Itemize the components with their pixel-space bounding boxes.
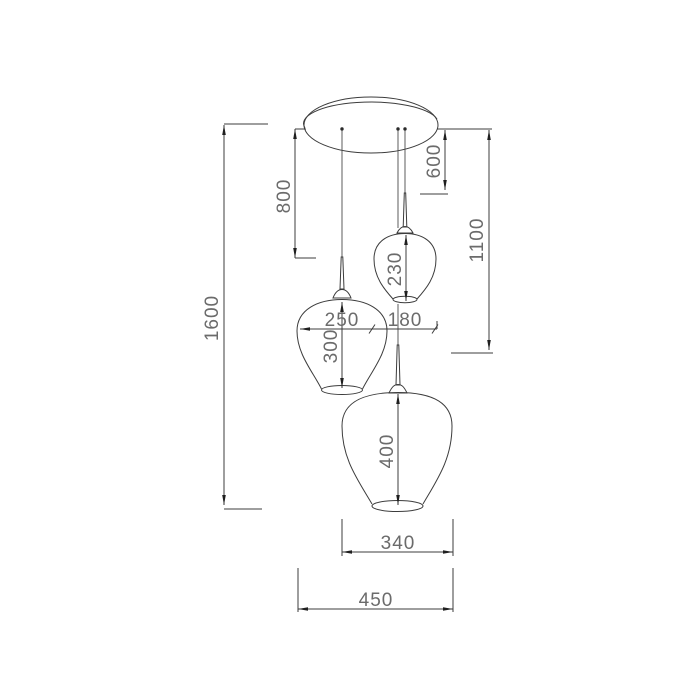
cap-medium [333, 290, 351, 299]
shade-small-rim [393, 296, 417, 302]
stem-small [403, 193, 407, 227]
dim-drop-medium-label: 1100 [467, 218, 488, 263]
dim-medium-shade-height-label: 300 [321, 329, 342, 364]
dim-total-height: 1600 [202, 124, 268, 509]
canopy-top-surface [304, 102, 437, 128]
cap-large [389, 385, 407, 394]
stem-large [396, 345, 400, 385]
dim-large-shade-width-label: 340 [381, 533, 416, 554]
dim-cord-right-label: 600 [424, 144, 445, 179]
dim-large-shade-width: 340 [342, 519, 453, 556]
dimensions: 1600 800 600 1100 [202, 124, 493, 612]
stem-medium [340, 257, 344, 289]
canopy-outline [304, 97, 438, 153]
dim-cord-right: 600 [420, 130, 448, 194]
dim-small-shade-height-label: 230 [385, 252, 406, 287]
dim-overall-width-label: 450 [359, 590, 394, 611]
technical-drawing-canvas: 1600 800 600 1100 [0, 0, 700, 700]
dim-large-shade-height: 400 [377, 394, 400, 505]
dim-medium-shade-width-label: 250 [325, 310, 360, 331]
dim-total-height-label: 1600 [202, 295, 223, 341]
dim-overall-width: 450 [298, 568, 453, 612]
dim-cord-left: 800 [274, 129, 316, 258]
dim-large-shade-height-label: 400 [377, 434, 398, 469]
pendant-lamp-dimension-drawing: 1600 800 600 1100 [0, 0, 700, 700]
dim-small-shade-width-label: 180 [388, 310, 423, 331]
dim-cord-left-label: 800 [274, 179, 295, 214]
dim-small-shade-height: 230 [385, 235, 408, 301]
canopy [304, 97, 438, 153]
